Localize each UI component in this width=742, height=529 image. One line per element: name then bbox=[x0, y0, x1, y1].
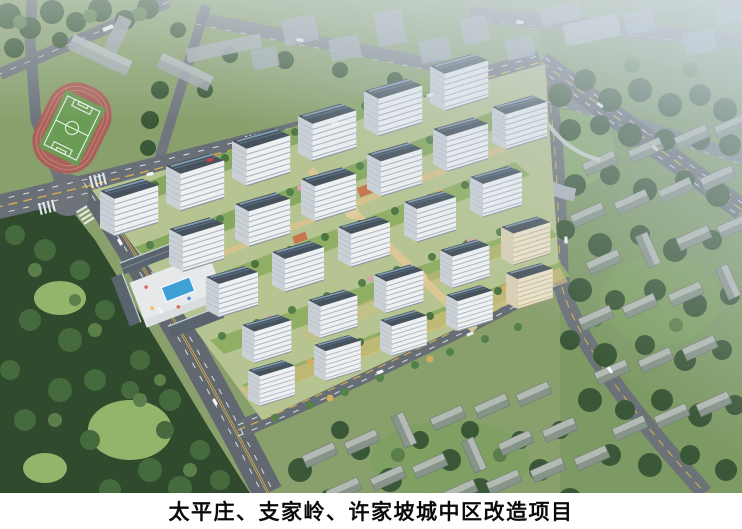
haze-top-overlay bbox=[0, 0, 742, 493]
project-rendering-figure: 太平庄、支家岭、许家坡城中区改造项目 bbox=[0, 0, 742, 529]
caption-text: 太平庄、支家岭、许家坡城中区改造项目 bbox=[169, 496, 574, 526]
project-caption: 太平庄、支家岭、许家坡城中区改造项目 bbox=[0, 493, 742, 529]
aerial-rendering-image bbox=[0, 0, 742, 493]
